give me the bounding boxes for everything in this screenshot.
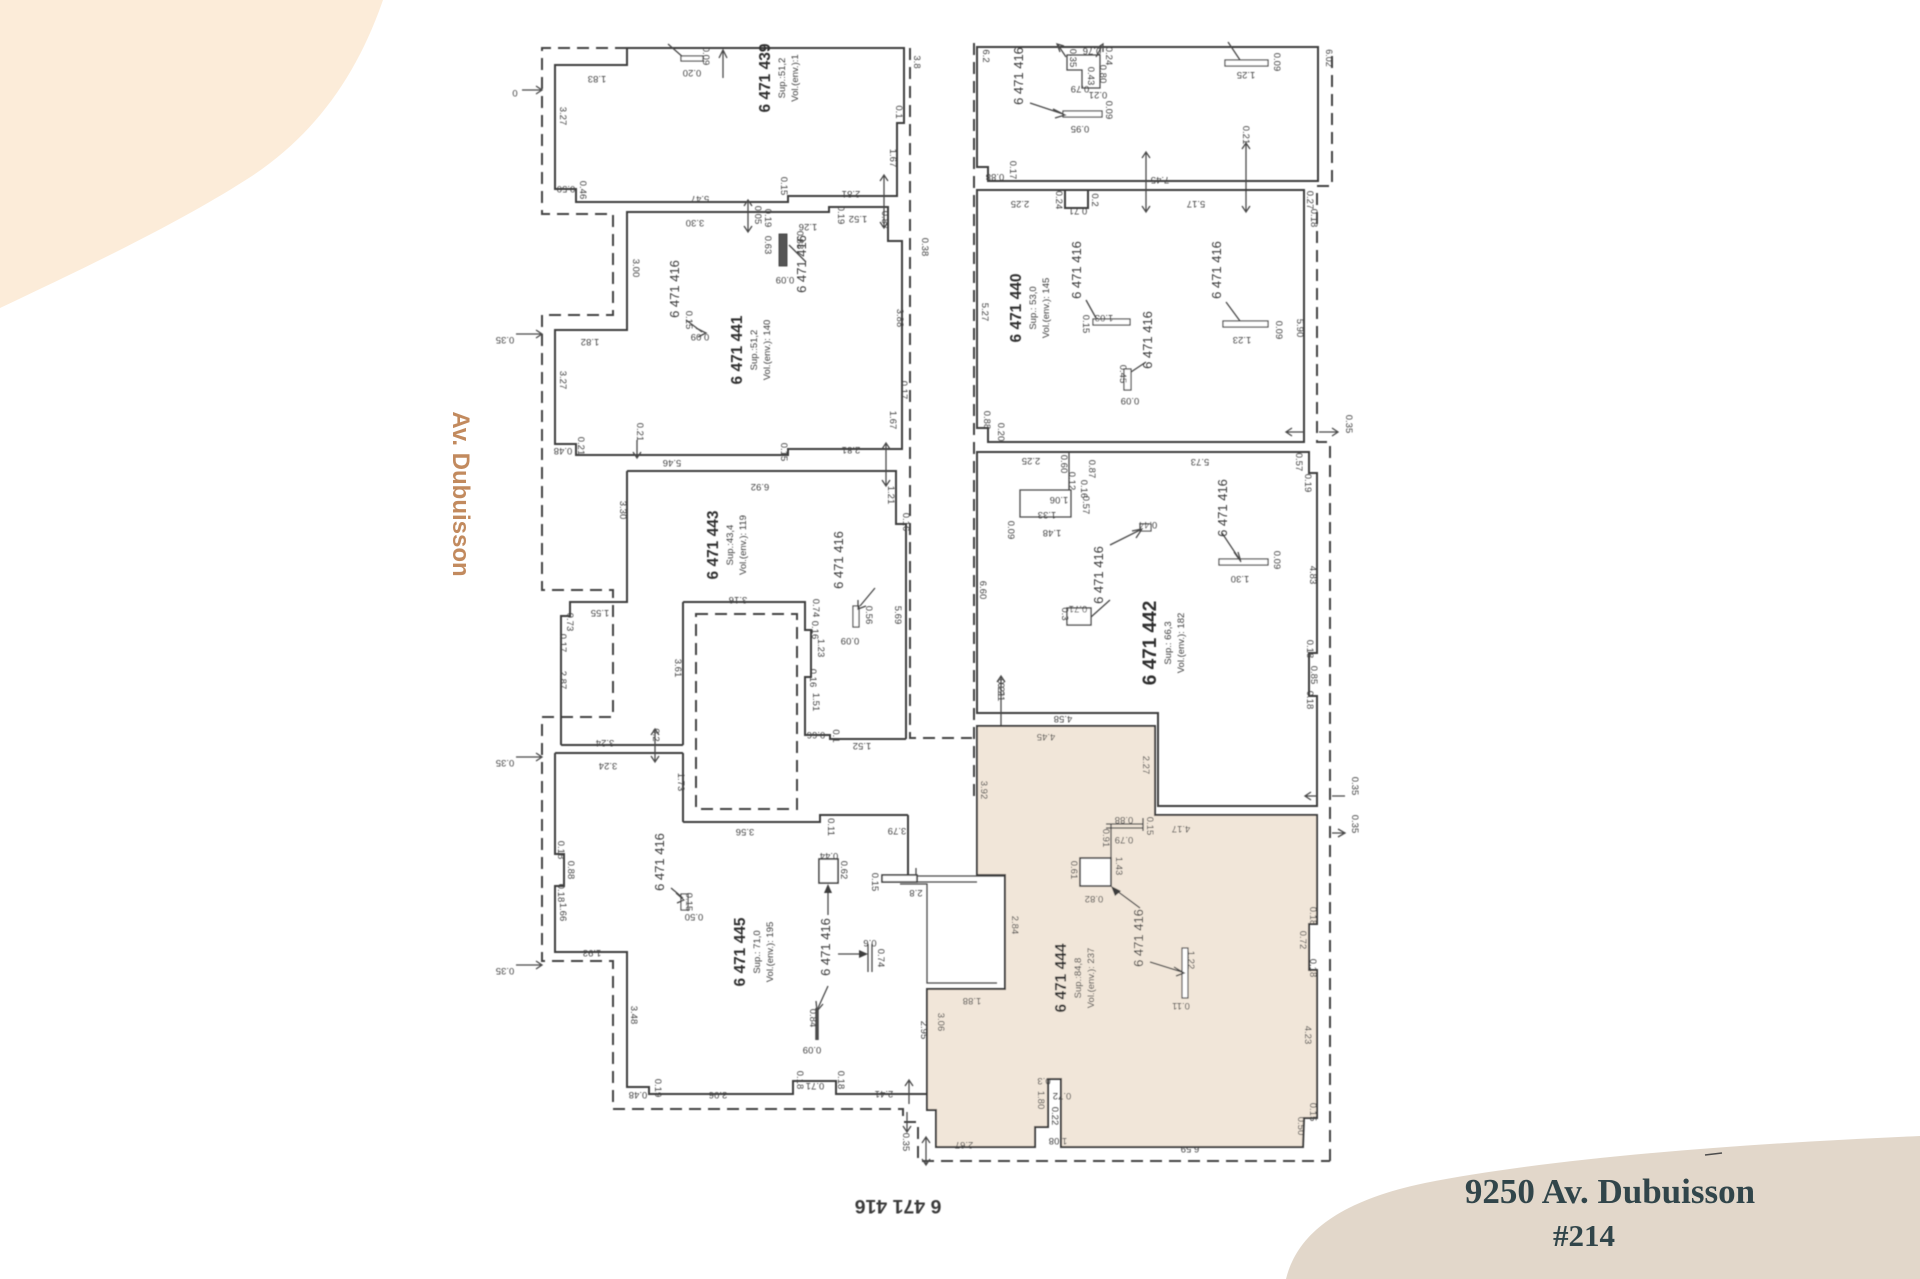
svg-text:0.44: 0.44	[820, 850, 839, 861]
svg-text:0.35: 0.35	[496, 757, 515, 768]
svg-text:0.79: 0.79	[1115, 834, 1134, 845]
svg-text:1.30: 1.30	[1231, 573, 1250, 584]
svg-text:0.48: 0.48	[554, 445, 573, 456]
svg-text:3.92: 3.92	[978, 781, 989, 800]
svg-text:0.20: 0.20	[995, 423, 1006, 442]
svg-text:3.27: 3.27	[557, 371, 568, 390]
svg-text:1.93: 1.93	[583, 947, 602, 958]
svg-text:0.27: 0.27	[1304, 191, 1315, 210]
svg-text:1.48: 1.48	[1043, 527, 1062, 538]
svg-text:0.19: 0.19	[835, 206, 846, 225]
svg-text:0.15: 0.15	[1144, 817, 1155, 836]
svg-text:Sup.:51,2: Sup.:51,2	[749, 330, 760, 371]
svg-text:6 471 416: 6 471 416	[1011, 47, 1026, 105]
svg-text:2.84: 2.84	[1009, 916, 1020, 935]
svg-text:0.16: 0.16	[809, 621, 820, 640]
svg-text:0.15: 0.15	[1080, 315, 1091, 334]
svg-text:0.15: 0.15	[683, 311, 694, 330]
svg-text:6 471 441: 6 471 441	[729, 315, 746, 384]
svg-text:6 471 416: 6 471 416	[1131, 909, 1146, 967]
svg-text:0.19: 0.19	[1302, 474, 1313, 493]
svg-text:4.23: 4.23	[1302, 1026, 1313, 1045]
svg-text:0.09: 0.09	[691, 331, 710, 342]
svg-text:0.21: 0.21	[1240, 126, 1251, 145]
svg-text:1.66: 1.66	[557, 903, 568, 922]
svg-text:0.18: 0.18	[1307, 907, 1318, 926]
svg-text:1.08: 1.08	[1049, 1135, 1068, 1146]
svg-text:6.59: 6.59	[1181, 1143, 1200, 1154]
svg-text:0.35: 0.35	[496, 334, 515, 345]
svg-text:1.80: 1.80	[1035, 1091, 1046, 1110]
svg-text:0.73: 0.73	[564, 613, 575, 632]
svg-text:Vol.(env.): 237: Vol.(env.): 237	[1086, 948, 1097, 1009]
svg-text:0.45: 0.45	[1117, 365, 1128, 384]
svg-text:4.45: 4.45	[1037, 731, 1056, 742]
svg-text:3.00: 3.00	[630, 259, 641, 278]
svg-text:0.09: 0.09	[1271, 53, 1282, 72]
svg-text:0.18: 0.18	[1304, 691, 1315, 710]
svg-text:0.79: 0.79	[1071, 83, 1090, 94]
svg-text:3.8: 3.8	[911, 55, 922, 68]
svg-text:2.8: 2.8	[909, 887, 922, 898]
svg-text:0.6: 0.6	[863, 937, 876, 948]
svg-text:0.48: 0.48	[629, 1089, 648, 1100]
svg-text:0.21: 0.21	[634, 423, 645, 442]
svg-text:0.16: 0.16	[807, 669, 818, 688]
svg-text:6 471 416: 6 471 416	[1209, 241, 1224, 299]
svg-text:Sup.:51,2: Sup.:51,2	[777, 58, 788, 99]
svg-text:0.19: 0.19	[762, 209, 773, 228]
svg-text:1.67: 1.67	[887, 149, 898, 168]
svg-text:0.19: 0.19	[652, 1079, 663, 1098]
svg-text:0.35: 0.35	[496, 965, 515, 976]
svg-text:2.67: 2.67	[955, 1139, 974, 1150]
svg-text:7.45: 7.45	[1151, 174, 1170, 185]
svg-text:0.63: 0.63	[762, 236, 773, 255]
svg-text:6 471 416: 6 471 416	[1215, 479, 1230, 537]
svg-text:0.15: 0.15	[778, 177, 789, 196]
svg-text:Sup.:84,8: Sup.:84,8	[1073, 958, 1084, 999]
svg-text:0.88: 0.88	[794, 231, 805, 250]
svg-text:0.15: 0.15	[778, 443, 789, 462]
svg-text:0.18: 0.18	[794, 1071, 805, 1090]
svg-text:3.24: 3.24	[599, 760, 618, 771]
svg-text:0.15: 0.15	[1307, 1103, 1318, 1122]
svg-text:1.51: 1.51	[810, 693, 821, 712]
svg-text:0.18: 0.18	[555, 841, 566, 860]
svg-text:6 471 445: 6 471 445	[732, 917, 749, 986]
svg-text:0.60: 0.60	[1058, 455, 1069, 474]
svg-text:1.52: 1.52	[849, 213, 868, 224]
svg-text:0.91: 0.91	[1100, 829, 1111, 848]
svg-text:6.02: 6.02	[1324, 49, 1334, 67]
svg-text:3.79: 3.79	[888, 825, 907, 836]
svg-text:6 471 416: 6 471 416	[818, 918, 833, 976]
svg-text:0.18: 0.18	[1307, 959, 1318, 978]
svg-text:6 471 416: 6 471 416	[1140, 311, 1155, 369]
svg-text:5.17: 5.17	[1187, 198, 1206, 209]
svg-text:6 471 416: 6 471 416	[667, 260, 682, 318]
svg-text:0.95: 0.95	[1071, 123, 1090, 134]
svg-text:0.21: 0.21	[575, 437, 586, 456]
svg-text:0.72: 0.72	[1297, 931, 1308, 950]
svg-text:0.62: 0.62	[838, 861, 849, 880]
svg-text:0.1: 0.1	[893, 105, 904, 118]
svg-text:3.30: 3.30	[617, 501, 628, 520]
svg-text:0: 0	[512, 87, 517, 98]
svg-text:2.81: 2.81	[842, 444, 861, 455]
svg-text:0.12: 0.12	[1066, 472, 1077, 491]
svg-text:2.81: 2.81	[842, 188, 861, 199]
svg-text:0.46: 0.46	[577, 181, 588, 200]
svg-text:0.88: 0.88	[981, 411, 992, 430]
svg-text:3.48: 3.48	[628, 1006, 639, 1025]
svg-text:0.16: 0.16	[1078, 480, 1089, 499]
svg-text:0.09: 0.09	[803, 1044, 822, 1055]
svg-text:5.27: 5.27	[979, 303, 990, 322]
svg-text:1.88: 1.88	[963, 995, 982, 1006]
svg-text:5.69: 5.69	[892, 606, 903, 625]
svg-text:6 471 416: 6 471 416	[1091, 546, 1106, 604]
svg-text:1.67: 1.67	[887, 411, 898, 430]
svg-text:0.09: 0.09	[776, 274, 795, 285]
svg-text:0.09: 0.09	[1121, 395, 1140, 406]
svg-text:5.47: 5.47	[691, 193, 710, 204]
svg-text:0.35: 0.35	[900, 1133, 911, 1152]
svg-text:3.88: 3.88	[894, 309, 905, 328]
svg-text:1.33: 1.33	[1038, 509, 1057, 520]
svg-text:6 471 416: 6 471 416	[831, 531, 846, 589]
svg-text:0.05: 0.05	[752, 206, 763, 225]
svg-text:1.83: 1.83	[588, 73, 607, 84]
svg-text:Sup.:43,4: Sup.:43,4	[725, 525, 736, 566]
svg-text:1.23: 1.23	[815, 639, 826, 658]
svg-text:3.56: 3.56	[736, 826, 755, 837]
svg-text:0.71: 0.71	[806, 1080, 825, 1091]
svg-text:0.74: 0.74	[875, 949, 886, 968]
svg-text:0.85: 0.85	[1308, 666, 1319, 685]
svg-text:0.15: 0.15	[869, 873, 880, 892]
svg-text:6 471 416: 6 471 416	[854, 1195, 941, 1217]
svg-text:2.27: 2.27	[1140, 756, 1151, 775]
svg-text:6 471 439: 6 471 439	[757, 43, 774, 112]
svg-text:0.88: 0.88	[1115, 814, 1134, 825]
svg-text:0.88: 0.88	[565, 861, 576, 880]
svg-text:0.11: 0.11	[825, 818, 836, 836]
svg-text:6.92: 6.92	[751, 481, 770, 492]
svg-text:0.22: 0.22	[1049, 1107, 1060, 1126]
svg-text:5.90: 5.90	[1294, 319, 1305, 338]
svg-text:0.71: 0.71	[1069, 205, 1088, 216]
svg-text:0.84: 0.84	[807, 1009, 818, 1028]
svg-text:3.24: 3.24	[596, 737, 615, 748]
svg-text:Vol.(env.): 145: Vol.(env.): 145	[1041, 278, 1052, 339]
svg-text:0.76: 0.76	[1083, 45, 1102, 56]
svg-text:1.82: 1.82	[581, 336, 600, 347]
svg-text:6 471 440: 6 471 440	[1008, 274, 1025, 343]
svg-text:1.55: 1.55	[591, 607, 610, 618]
svg-text:0.24: 0.24	[1053, 191, 1064, 210]
svg-text:5.46: 5.46	[663, 457, 682, 468]
svg-text:3.06: 3.06	[935, 1013, 946, 1032]
svg-text:0.50: 0.50	[557, 183, 576, 194]
svg-text:0.43: 0.43	[1085, 67, 1096, 86]
svg-text:0.21: 0.21	[995, 683, 1006, 702]
svg-text:Vol.(env.): 140: Vol.(env.): 140	[762, 320, 773, 381]
svg-text:0.80: 0.80	[1097, 65, 1108, 84]
svg-text:0.35: 0.35	[1349, 777, 1360, 796]
svg-text:Vol.(env.): 195: Vol.(env.): 195	[765, 922, 776, 983]
svg-text:0.15: 0.15	[683, 893, 694, 912]
svg-text:0.18: 0.18	[1308, 209, 1319, 228]
svg-text:0.35: 0.35	[1343, 415, 1354, 434]
svg-text:0.74: 0.74	[810, 599, 821, 618]
svg-text:0.1: 0.1	[830, 729, 841, 742]
svg-text:2.25: 2.25	[1022, 455, 1041, 466]
svg-text:0.88: 0.88	[986, 171, 1005, 182]
svg-text:Sup.: 53,0: Sup.: 53,0	[1028, 286, 1039, 329]
svg-text:0.38: 0.38	[919, 238, 930, 257]
svg-text:0.21: 0.21	[1089, 89, 1108, 100]
svg-text:6.2: 6.2	[980, 49, 991, 62]
svg-text:4.58: 4.58	[1054, 713, 1073, 724]
svg-text:5.73: 5.73	[1191, 456, 1210, 467]
svg-text:6 471 442: 6 471 442	[1140, 601, 1161, 686]
svg-text:6 471 443: 6 471 443	[705, 510, 722, 579]
svg-text:2.41: 2.41	[875, 1088, 894, 1099]
svg-text:1.03: 1.03	[1095, 312, 1114, 323]
svg-text:0.20: 0.20	[683, 67, 702, 78]
svg-text:0.17: 0.17	[898, 381, 909, 400]
svg-text:0.09: 0.09	[700, 47, 711, 66]
svg-text:1.22: 1.22	[1185, 951, 1196, 970]
svg-text:4.17: 4.17	[1172, 823, 1191, 834]
svg-text:0.09: 0.09	[1005, 521, 1016, 540]
svg-text:1.23: 1.23	[1233, 334, 1252, 345]
svg-text:Sup.: 66,3: Sup.: 66,3	[1163, 621, 1174, 664]
svg-text:0.18: 0.18	[835, 1071, 846, 1090]
svg-text:Av. Dubuisson: Av. Dubuisson	[447, 411, 474, 576]
svg-text:0.50: 0.50	[1295, 1117, 1306, 1136]
svg-text:0.18: 0.18	[555, 884, 566, 903]
svg-text:4.83: 4.83	[1307, 566, 1318, 585]
svg-text:0.3: 0.3	[1059, 607, 1070, 620]
svg-text:0.82: 0.82	[1085, 893, 1104, 904]
svg-text:0.09: 0.09	[1273, 321, 1284, 340]
svg-text:Vol.(env.):1: Vol.(env.):1	[790, 54, 801, 101]
svg-text:0.18: 0.18	[1304, 640, 1315, 659]
svg-text:6.60: 6.60	[977, 581, 988, 600]
svg-text:3.16: 3.16	[729, 594, 748, 605]
svg-text:0.66: 0.66	[807, 729, 826, 740]
svg-text:Vol.(env.): 119: Vol.(env.): 119	[738, 515, 749, 575]
svg-text:0.61: 0.61	[1068, 861, 1079, 880]
svg-text:0.24: 0.24	[1103, 47, 1114, 66]
svg-text:0.2: 0.2	[1089, 193, 1100, 206]
svg-text:1.52: 1.52	[853, 740, 872, 751]
svg-text:0.09: 0.09	[1271, 551, 1282, 570]
svg-text:1.25: 1.25	[1237, 69, 1256, 80]
svg-text:6 471 416: 6 471 416	[1069, 241, 1084, 299]
svg-text:1.21: 1.21	[885, 486, 896, 505]
svg-text:0.09: 0.09	[841, 635, 860, 646]
svg-text:1.06: 1.06	[1050, 494, 1069, 505]
svg-text:0.50: 0.50	[685, 911, 704, 922]
svg-text:3.27: 3.27	[557, 107, 568, 126]
svg-text:Sup.: 71,0: Sup.: 71,0	[752, 930, 763, 973]
svg-text:0.72: 0.72	[1053, 1090, 1072, 1101]
svg-text:0.87: 0.87	[1086, 460, 1097, 479]
svg-text:3.06: 3.06	[709, 1089, 728, 1100]
svg-text:0.35: 0.35	[1067, 49, 1078, 68]
svg-text:Vol.(env.): 182: Vol.(env.): 182	[1176, 613, 1187, 674]
svg-text:6 471 444: 6 471 444	[1053, 943, 1070, 1012]
svg-text:0.3: 0.3	[1037, 1075, 1050, 1086]
svg-text:3.61: 3.61	[672, 659, 683, 678]
svg-text:2.87: 2.87	[557, 671, 568, 690]
svg-text:0.57: 0.57	[1080, 496, 1091, 515]
svg-text:0.17: 0.17	[1007, 161, 1018, 180]
svg-text:0.16: 0.16	[900, 513, 911, 532]
svg-text:0.57: 0.57	[1293, 453, 1304, 472]
svg-text:0.35: 0.35	[1349, 815, 1360, 834]
svg-text:0.17: 0.17	[557, 634, 568, 653]
svg-text:2.25: 2.25	[1011, 198, 1030, 209]
svg-text:0.56: 0.56	[863, 606, 874, 625]
svg-text:0.09: 0.09	[1103, 101, 1114, 120]
svg-text:1.73: 1.73	[675, 773, 686, 792]
svg-text:0.87: 0.87	[879, 211, 890, 230]
svg-text:0.44: 0.44	[1139, 519, 1158, 530]
svg-text:1.43: 1.43	[1113, 857, 1124, 876]
svg-text:0.11: 0.11	[1172, 1000, 1190, 1011]
svg-text:0.71: 0.71	[1069, 603, 1088, 614]
svg-text:6 471 416: 6 471 416	[652, 833, 667, 891]
svg-text:3.30: 3.30	[686, 217, 705, 228]
